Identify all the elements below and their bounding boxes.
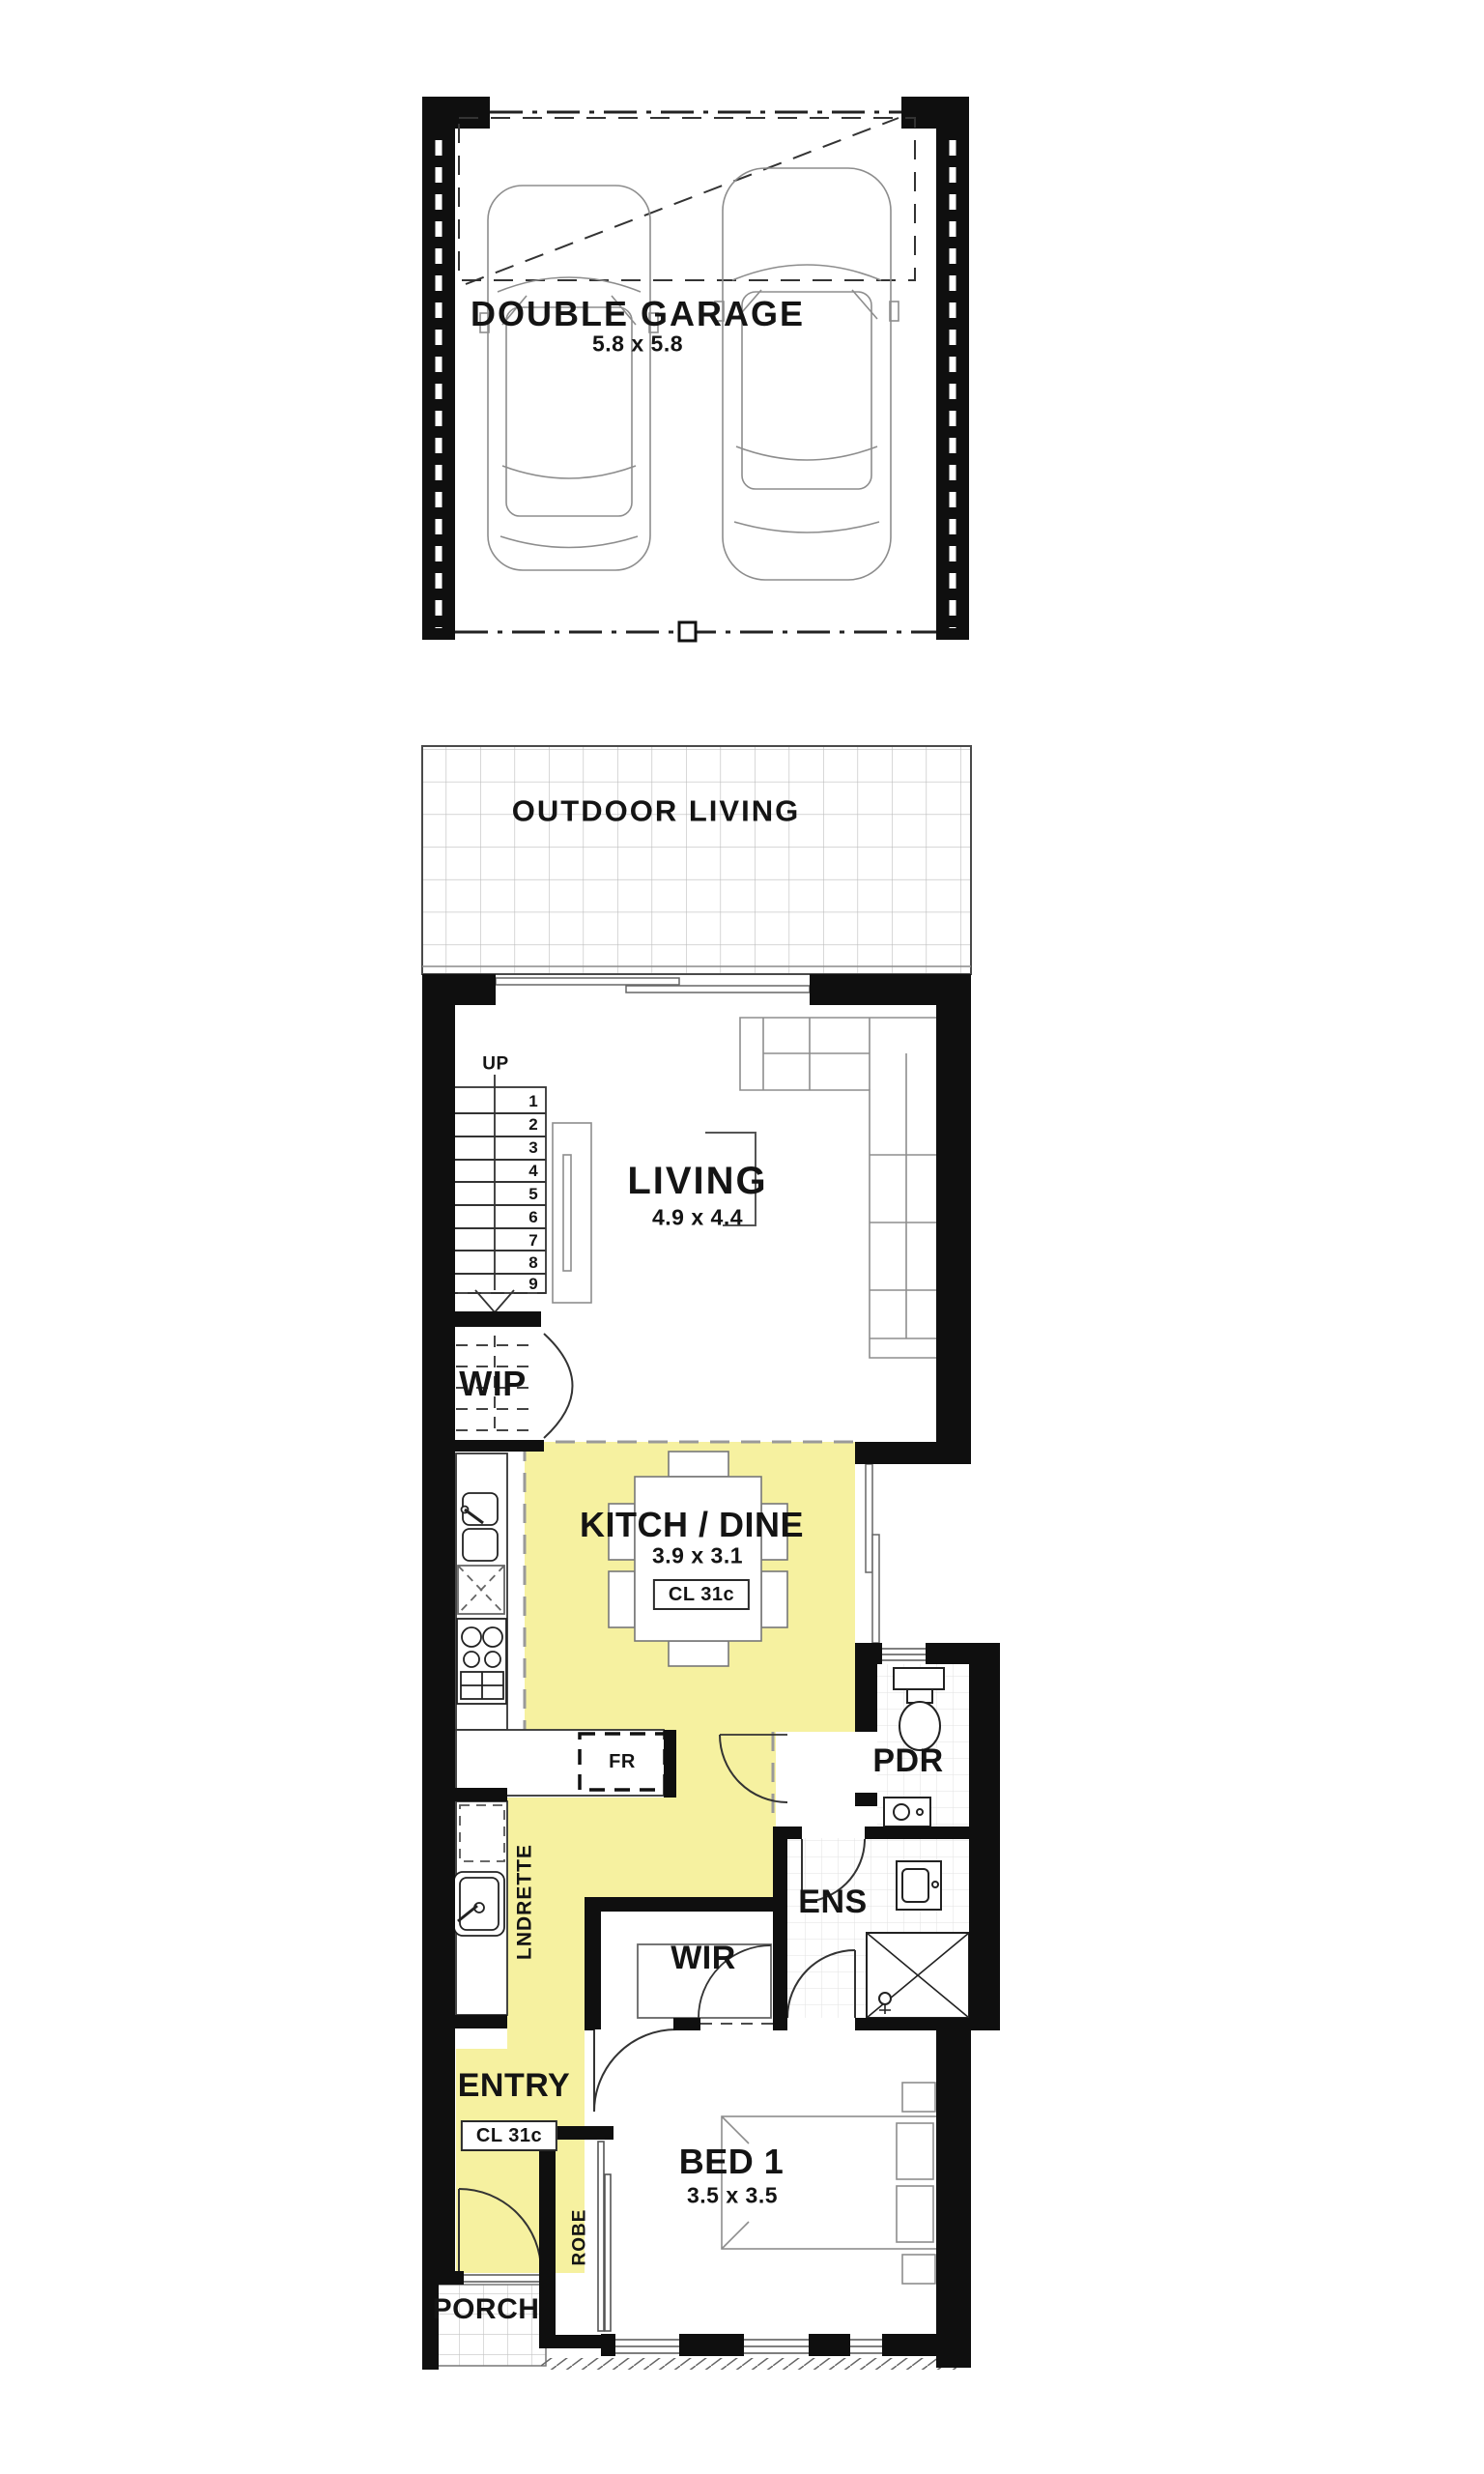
laundry-fittings — [454, 1801, 507, 2015]
stair-number: 2 — [528, 1115, 537, 1135]
wip-label: WIP — [459, 1366, 527, 1401]
entry-label: ENTRY — [458, 2069, 570, 2102]
sofa — [740, 1018, 942, 1358]
stair-number: 3 — [528, 1138, 537, 1158]
stairs-up-label: UP — [482, 1055, 508, 1074]
kitchen-dine-label: KITCH / DINE — [580, 1508, 804, 1542]
laundry-label: LNDRETTE — [515, 1844, 535, 1960]
entry-ceiling-tag: CL 31c — [461, 2120, 557, 2151]
bed1-label: BED 1 — [679, 2144, 785, 2179]
garage-dim: 5.8 x 5.8 — [592, 333, 683, 356]
stair-number: 7 — [528, 1231, 537, 1251]
tv-unit — [553, 1123, 591, 1303]
stair-number: 5 — [528, 1185, 537, 1204]
pdr-label: PDR — [872, 1744, 943, 1777]
kitchen-dine-dim: 3.9 x 3.1 — [652, 1545, 743, 1568]
garage-label: DOUBLE GARAGE — [471, 297, 805, 331]
garage-structure — [422, 97, 969, 641]
kitchen-ceiling-tag: CL 31c — [653, 1579, 750, 1610]
stair-number: 9 — [528, 1275, 537, 1294]
outdoor-living-area — [422, 746, 971, 974]
robe-slider — [598, 2142, 611, 2331]
fridge-label: FR — [609, 1752, 636, 1771]
living-label: LIVING — [627, 1162, 767, 1200]
living-dim: 4.9 x 4.4 — [652, 1207, 743, 1229]
car-outline-sedan — [715, 168, 899, 580]
robe-label: ROBE — [571, 2209, 589, 2266]
wir-label: WIR — [671, 1942, 736, 1974]
stair-number: 1 — [528, 1092, 537, 1111]
floor-plan: DOUBLE GARAGE 5.8 x 5.8 OUTDOOR LIVING U… — [0, 0, 1484, 2474]
porch-label: PORCH — [433, 2295, 540, 2324]
stair-number: 8 — [528, 1253, 537, 1273]
outdoor-living-label: OUTDOOR LIVING — [512, 796, 800, 826]
floor-plan-drawing — [0, 0, 1484, 2474]
stair-number: 6 — [528, 1208, 537, 1227]
bed1-dim: 3.5 x 3.5 — [687, 2185, 778, 2207]
car-outline-suv — [480, 186, 658, 570]
ens-label: ENS — [798, 1885, 867, 1918]
stair-number: 4 — [528, 1162, 537, 1181]
